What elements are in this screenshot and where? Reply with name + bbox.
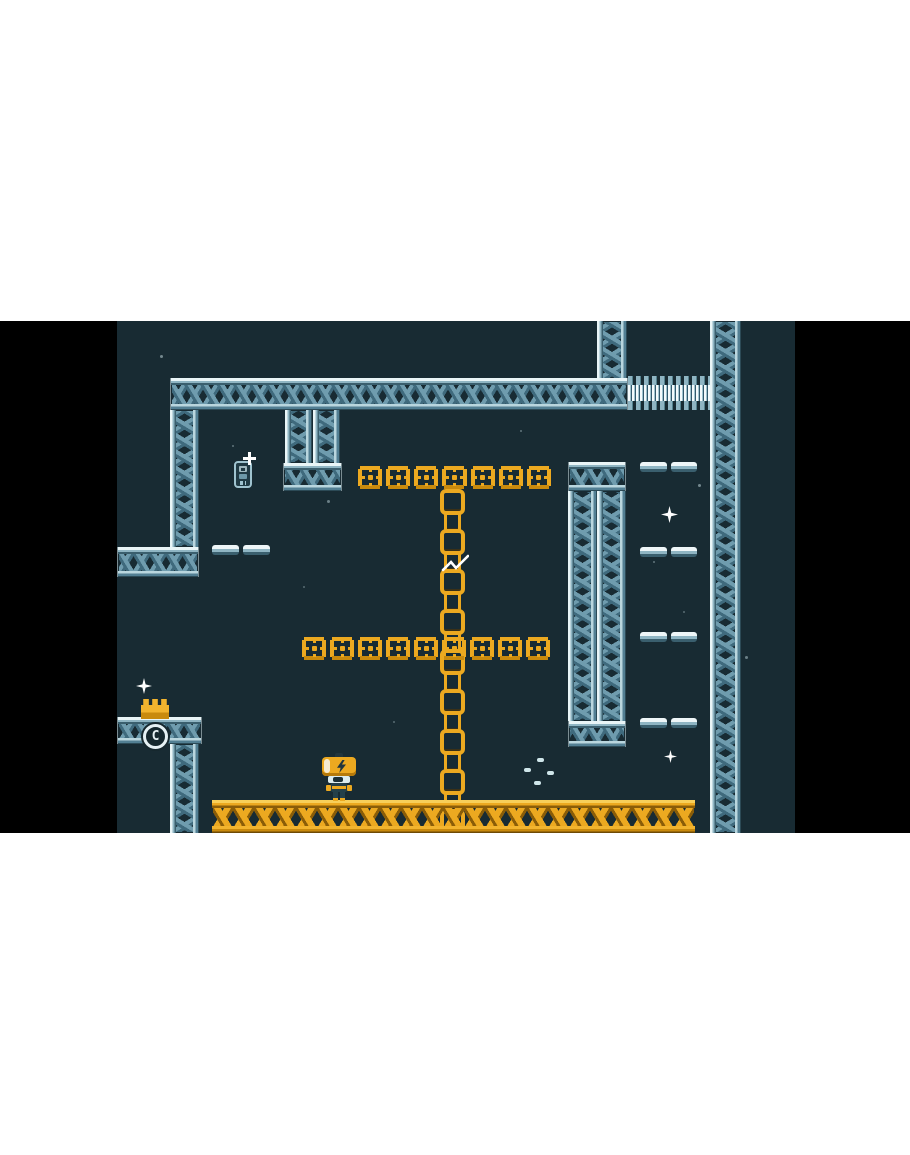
robot-leg-right	[340, 792, 345, 801]
robot-belt	[332, 786, 346, 789]
orange-platform-upper	[356, 464, 553, 491]
beam-segment	[640, 718, 667, 728]
girder-lattice	[574, 492, 591, 720]
bg-dot	[653, 561, 655, 563]
bg-dot	[683, 611, 685, 613]
beam-segment	[671, 632, 698, 642]
platform-link-tile	[497, 464, 525, 491]
bg-dot	[303, 586, 305, 588]
tile-core	[340, 646, 345, 651]
girder-lattice	[176, 411, 193, 546]
girder-top-span	[170, 378, 628, 410]
platform-link-tile	[469, 464, 497, 491]
girder-mid-column-a	[285, 410, 312, 463]
platform-link-tile	[384, 464, 412, 491]
chip-teeth	[240, 481, 246, 485]
particle-dash	[524, 768, 531, 772]
bg-dot	[327, 500, 330, 503]
crown-item	[141, 699, 169, 719]
robot-head-shine	[324, 759, 330, 773]
beam-segment	[671, 547, 698, 557]
girder-lattice	[176, 745, 193, 832]
chip-slot-pin	[241, 468, 245, 471]
girder-lattice	[119, 554, 197, 571]
platform-link-tile	[524, 635, 552, 662]
platform-link-tile	[356, 464, 384, 491]
platform-link-tile	[412, 464, 440, 491]
girder-top-right-column	[597, 321, 627, 379]
beam-segment	[640, 632, 667, 642]
platform-link-tile	[496, 635, 524, 662]
girder-lattice	[319, 411, 334, 462]
girder-right-wall	[710, 321, 741, 833]
platform-link-tile	[440, 635, 468, 662]
girder-left-upper	[170, 410, 199, 547]
conveyor-belt	[628, 385, 710, 401]
pipe-ledge-left	[212, 545, 270, 555]
robot-leg-left	[333, 792, 338, 801]
girder-right-mid-column-b	[597, 491, 626, 721]
bg-dot	[520, 430, 522, 432]
bg-dot	[232, 445, 234, 447]
tile-core	[368, 646, 373, 651]
tile-core	[312, 646, 317, 651]
pipe-ledge-right-1	[640, 462, 697, 472]
orange-platform-lower	[300, 635, 552, 662]
tile-core	[536, 646, 541, 651]
sparkle-crown	[136, 678, 152, 694]
girder-lattice	[603, 322, 621, 378]
tile-core	[452, 475, 457, 480]
girder-lattice	[603, 492, 620, 720]
robot-visor	[333, 777, 343, 782]
chip-sparkle	[243, 452, 256, 465]
tile-core	[424, 646, 429, 651]
platform-link-tile	[468, 635, 496, 662]
tile-core	[480, 475, 485, 480]
cut-cursor	[441, 553, 469, 574]
bg-dot	[745, 656, 748, 659]
platform-link-tile	[328, 635, 356, 662]
pipe-ledge-right-4	[640, 718, 697, 728]
game-frame: C	[0, 321, 910, 833]
platform-link-tile	[440, 464, 468, 491]
pipe-ledge-right-2	[640, 547, 697, 557]
girder-right-mid-cap-top	[568, 462, 626, 491]
tile-core	[508, 646, 513, 651]
girder-left-ledge	[117, 547, 199, 577]
girder-lattice	[285, 470, 340, 485]
bg-dot	[393, 721, 395, 723]
tile-core	[368, 475, 373, 480]
girder-lattice	[570, 469, 624, 485]
tile-core	[452, 646, 457, 651]
particle-dash	[537, 758, 544, 762]
platform-link-tile	[300, 635, 328, 662]
orange-floor	[212, 800, 695, 833]
game-viewport[interactable]: C	[117, 321, 795, 833]
tile-core	[396, 475, 401, 480]
robot-arm-left	[326, 785, 331, 791]
tile-core	[536, 475, 541, 480]
beam-segment	[671, 718, 698, 728]
chip-slot	[239, 474, 247, 479]
screenshot-page: C	[0, 0, 910, 1155]
platform-link-tile	[412, 635, 440, 662]
beam-segment	[243, 545, 270, 555]
girder-lattice	[291, 411, 306, 462]
girder-right-mid-cap-bottom	[568, 721, 626, 747]
checkpoint-badge: C	[143, 724, 168, 749]
tile-core	[424, 475, 429, 480]
robot-arm-right	[347, 785, 352, 791]
collectible-chip	[234, 461, 252, 488]
tile-core	[508, 475, 513, 480]
particle-dash	[547, 771, 554, 775]
beam-segment	[212, 545, 239, 555]
beam-segment	[640, 547, 667, 557]
cut-cursor-glyph	[441, 553, 469, 574]
beam-segment	[640, 462, 667, 472]
girder-lattice	[570, 728, 624, 741]
bg-dot	[698, 484, 701, 487]
player-robot	[320, 753, 358, 801]
sparkle-right	[661, 506, 678, 523]
sparkle-bottom-right	[664, 750, 677, 763]
particle-dash	[534, 781, 541, 785]
conveyor-bridge	[628, 376, 710, 410]
platform-link-tile	[356, 635, 384, 662]
girder-left-lower	[170, 744, 199, 833]
girder-right-mid-column-a	[568, 491, 597, 721]
platform-link-tile	[384, 635, 412, 662]
platform-link-tile	[525, 464, 553, 491]
beam-segment	[671, 462, 698, 472]
girder-lattice	[172, 385, 626, 404]
girder-mid-cap	[283, 463, 342, 491]
girder-lattice	[213, 808, 694, 826]
girder-lattice	[716, 322, 735, 832]
bg-dot	[160, 355, 163, 358]
badge-letter: C	[152, 729, 160, 744]
pipe-ledge-right-3	[640, 632, 697, 642]
tile-core	[480, 646, 485, 651]
tile-core	[396, 646, 401, 651]
girder-mid-column-b	[313, 410, 340, 463]
